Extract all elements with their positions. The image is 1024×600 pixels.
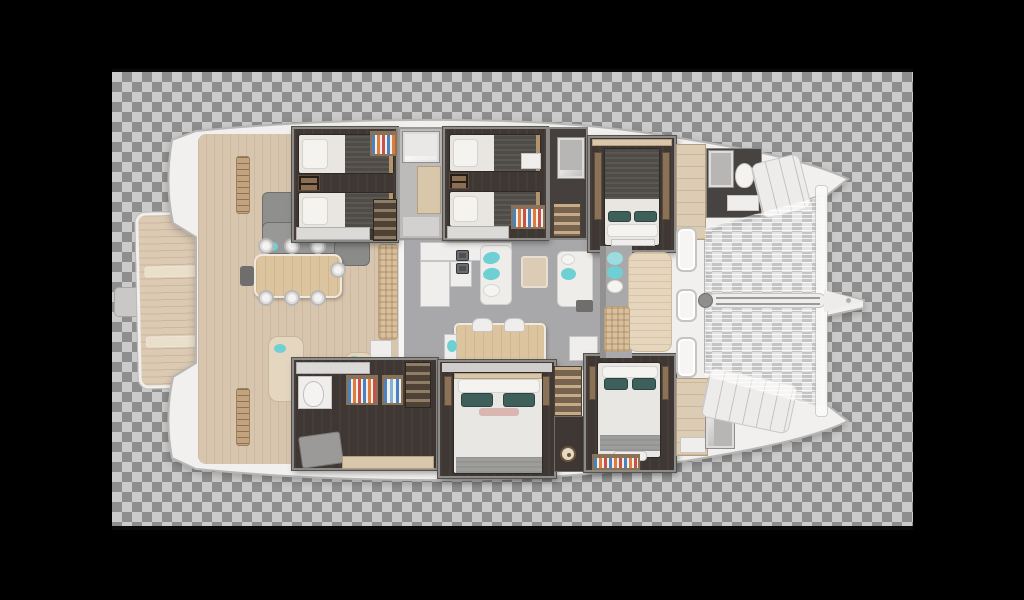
- shower-glass: [560, 170, 582, 176]
- cabin-wall-band: [442, 363, 552, 372]
- bed-side-rail: [542, 376, 550, 406]
- salon-side-table: [576, 300, 593, 312]
- nightstand-drawer: [301, 178, 317, 183]
- bed-pillow-dark-teal: [632, 378, 656, 390]
- bowsprit-rod: [716, 303, 820, 305]
- bed-pillow: [453, 139, 478, 167]
- bowsprit-beam: [708, 293, 826, 308]
- medallion-center: [567, 453, 571, 457]
- port-corridor-block: [548, 127, 588, 240]
- flybridge-ladder-bottom: [236, 388, 250, 446]
- companionway-stairs: [554, 366, 582, 416]
- galley-stove: [456, 263, 469, 274]
- double-bed: [453, 372, 543, 474]
- forward-cushion-teal: [607, 266, 623, 279]
- bed-pillow-dark-teal: [608, 211, 631, 222]
- bowsprit-tip: [824, 290, 864, 312]
- nightstand-drawer: [301, 185, 317, 190]
- sofa-pillow-teal: [561, 268, 576, 280]
- wardrobe-hanging-clothes: [511, 205, 545, 229]
- vanity-counter: [417, 166, 441, 214]
- bowsprit-rod: [716, 297, 820, 299]
- bed-pillow: [302, 139, 328, 169]
- cockpit-console: [240, 266, 254, 286]
- bed-side-rail: [662, 366, 669, 400]
- salon-door-wicker-panel: [378, 244, 398, 340]
- wardrobe-hanging-clothes: [346, 375, 378, 405]
- double-bed: [597, 362, 661, 458]
- windlass-drum: [698, 293, 713, 308]
- cabin-vanity-seat: [521, 153, 541, 169]
- cabin-double-starboard-mid: [438, 360, 556, 478]
- cabin-twin-mid: [443, 127, 548, 240]
- forward-cabinets-port: [676, 144, 706, 240]
- galley-counter-left: [420, 261, 450, 307]
- companionway-stairs: [553, 203, 581, 237]
- head-floor: [403, 217, 439, 236]
- shower-glass: [405, 156, 437, 162]
- galley-sink: [456, 250, 469, 261]
- wardrobe-hanging-clothes: [382, 375, 403, 405]
- cabin-bench: [447, 226, 509, 239]
- companionway-stairs: [373, 199, 397, 241]
- deck-hatch: [676, 227, 697, 272]
- dinette-cushion-teal: [447, 340, 457, 352]
- deck-hatch: [676, 289, 697, 322]
- sofa-pillow-white: [561, 254, 575, 265]
- bed-pillow-dark-teal: [634, 211, 657, 222]
- double-bed: [604, 148, 660, 246]
- nightstand: [449, 173, 469, 189]
- salon-rug: [521, 256, 548, 288]
- flybridge-ladder-top: [236, 156, 250, 214]
- washbasin: [680, 437, 706, 453]
- cockpit-end-chair: [330, 262, 346, 278]
- bed-side-rail: [594, 152, 602, 220]
- sofa-pillow-white: [483, 284, 500, 297]
- shower-stall: [403, 132, 439, 162]
- companionway-stairs: [405, 362, 431, 408]
- sideboard-counter: [342, 456, 434, 469]
- bed-side-rail: [589, 366, 596, 400]
- cabin-twin-aft: [292, 127, 398, 242]
- shower-stall: [709, 151, 733, 187]
- cabin-bench: [296, 362, 370, 374]
- screenshot-stage: [0, 0, 1024, 600]
- bed-foot-blanket: [456, 457, 542, 473]
- dinette-chair: [472, 318, 493, 332]
- bed-side-rail: [444, 376, 452, 406]
- nightstand-drawer: [452, 176, 466, 181]
- wardrobe-hanging-clothes: [370, 131, 397, 156]
- deck-hatch: [676, 337, 697, 378]
- shower-stall: [558, 138, 584, 178]
- utility-head-starboard-aft: [292, 358, 438, 470]
- bed-pillow-dark-teal: [461, 393, 493, 407]
- cabin-double-port-forward: [588, 136, 676, 252]
- dinette-chair: [504, 318, 525, 332]
- bowsprit-assembly: [696, 288, 872, 314]
- compass-medallion: [560, 446, 576, 462]
- desk-unit: [298, 431, 344, 469]
- salon-dinette-table: [454, 323, 546, 363]
- cabin-double-starboard-forward: [584, 354, 676, 472]
- bed-pillow-dark-teal: [604, 378, 628, 390]
- bed-pillow: [458, 379, 540, 393]
- nightstand: [298, 175, 320, 191]
- washbasin-counter: [727, 195, 759, 211]
- bed-pillow-pink: [479, 408, 519, 416]
- toilet: [303, 381, 324, 407]
- starboard-corridor: [554, 416, 584, 472]
- bed-pillow: [302, 197, 328, 225]
- foredeck-wicker-mat: [604, 306, 630, 352]
- forward-cabinets-starboard: [676, 378, 708, 456]
- cockpit-chair: [258, 290, 274, 306]
- shower-glass: [708, 418, 714, 446]
- forward-cushion-light-teal: [607, 252, 623, 265]
- wardrobe-hanging-clothes: [592, 454, 640, 470]
- head-compartment-port-aft: [398, 127, 444, 240]
- bed-pillow: [602, 366, 658, 378]
- cockpit-chair: [258, 238, 274, 254]
- bed-pillow: [607, 224, 658, 237]
- bed-foot-blanket: [600, 435, 660, 451]
- bed-pillow: [453, 196, 478, 222]
- nightstand-drawer: [452, 183, 466, 188]
- cockpit-chair: [310, 290, 326, 306]
- foot-bench: [611, 239, 655, 246]
- bench-pillow-teal: [274, 344, 286, 353]
- foredeck-sun-pad: [628, 252, 672, 352]
- bed-duvet: [605, 149, 659, 199]
- bed-pillow-dark-teal: [503, 393, 535, 407]
- forward-cushion-white: [607, 280, 623, 293]
- bed-side-rail: [662, 152, 670, 220]
- headboard-shelf: [592, 139, 672, 146]
- cabin-bench: [296, 227, 370, 240]
- cockpit-chair: [284, 290, 300, 306]
- bowsprit-tip-fitting: [846, 298, 851, 303]
